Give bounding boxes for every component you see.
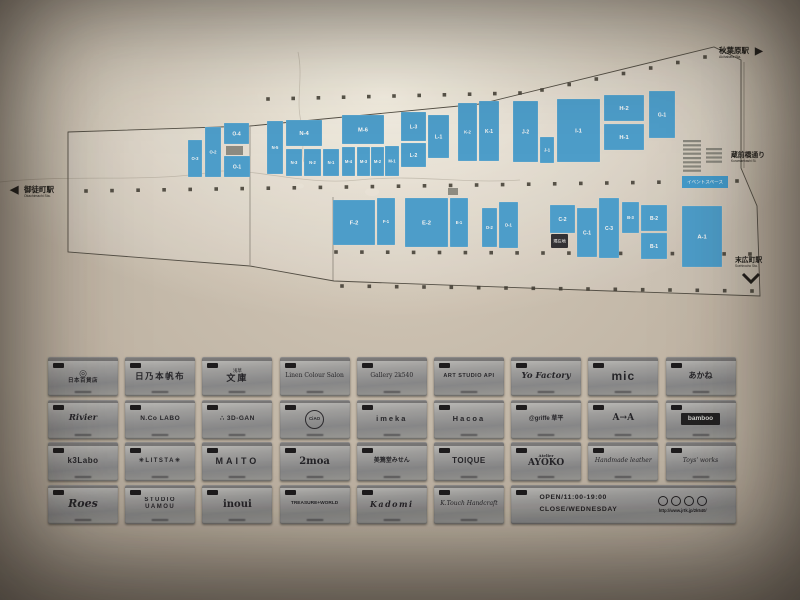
sns-icon <box>697 496 707 506</box>
tenant-caption <box>383 519 400 521</box>
map-unit-N-5: N-5 <box>267 121 283 174</box>
tenant-caption <box>538 476 555 478</box>
tenant-plate: Linen Colour Salon <box>280 357 350 396</box>
tenant-caption <box>75 391 92 393</box>
tenant-plate: mic <box>588 357 658 396</box>
pillar-dot <box>449 184 453 188</box>
map-unit-B-2: B-2 <box>641 205 667 231</box>
tenant-logo-text: STUDIO UAMOU <box>129 497 191 510</box>
pillar-dot <box>668 288 672 292</box>
unit-label: N-1 <box>328 160 335 165</box>
unit-number-badge <box>362 405 373 410</box>
pillar-dot <box>631 181 635 185</box>
tenant-plate: Yo Factory <box>511 357 581 396</box>
tenant-plate: ✳LITSTA✳ <box>125 442 195 481</box>
tenant-caption <box>229 434 246 436</box>
unit-number-badge <box>285 448 296 453</box>
tenant-plate: あかね <box>666 357 736 396</box>
tenant-plate: inoui <box>202 485 272 524</box>
map-unit-H-1: H-1 <box>604 124 644 150</box>
map-unit-O-3: O-3 <box>188 140 202 177</box>
unit-number-badge <box>516 448 527 453</box>
unit-label: B-2 <box>650 216 658 222</box>
info-plate: OPEN/11:00-19:00 CLOSE/WEDNESDAY http://… <box>511 485 735 524</box>
map-unit-K-1: K-1 <box>479 101 499 161</box>
tenant-logo-text: 2moa <box>299 456 330 467</box>
pillar-dot <box>162 188 166 192</box>
pillar-dot <box>450 286 454 290</box>
unit-label: A-1 <box>697 235 707 241</box>
unit-label: H-2 <box>619 106 628 112</box>
tenant-logo-text: TOIQUE <box>452 457 486 466</box>
station-label-akihabara: 秋葉原駅▶Akihabara Sta. <box>718 45 764 59</box>
svg-text:現在地: 現在地 <box>553 238 566 245</box>
unit-label: K-2 <box>464 129 471 134</box>
tenant-plate: imeka <box>357 400 427 439</box>
unit-label: M-6 <box>358 128 369 134</box>
svg-text:◀: ◀ <box>9 184 19 196</box>
unit-label: B-1 <box>650 244 658 250</box>
map-unit-L-3: L-3 <box>401 112 426 141</box>
map-unit-L-1: L-1 <box>428 115 449 158</box>
tenant-caption <box>306 519 323 521</box>
map-unit-E-1: E-1 <box>450 198 468 247</box>
pillar-dot <box>671 252 675 256</box>
pillar-dot <box>392 94 396 98</box>
unit-label: B-3 <box>627 215 634 220</box>
sns-icon <box>658 496 668 506</box>
tenant-caption <box>75 476 92 478</box>
unit-number-badge <box>593 363 604 368</box>
unit-label: M-1 <box>388 158 396 163</box>
tenant-logo-text: inoui <box>223 499 252 510</box>
close-day: CLOSE/WEDNESDAY <box>540 504 618 516</box>
unit-number-badge <box>130 490 141 495</box>
tenant-logo-text: ∴ 3D-GAN <box>220 415 255 422</box>
unit-number-badge <box>439 405 450 410</box>
pillar-dot <box>367 95 371 99</box>
unit-number-badge <box>362 490 373 495</box>
tenant-logo-text: Yo Factory <box>522 372 571 381</box>
map-unit-O-2: O-2 <box>205 127 221 177</box>
unit-number-badge <box>130 363 141 368</box>
svg-text:Akihabara Sta.: Akihabara Sta. <box>719 55 741 59</box>
tenant-logo-text: Roes <box>68 498 98 510</box>
pillar-dot <box>518 91 522 95</box>
tenant-plate: 浅草文庫 <box>202 357 272 396</box>
tenant-caption <box>692 476 709 478</box>
tenant-caption <box>229 391 246 393</box>
pillar-dot <box>489 251 493 255</box>
unit-number-badge <box>285 363 296 368</box>
tenant-logo-text: Toys' works <box>683 458 719 465</box>
sns-icons <box>658 496 707 506</box>
unit-number-badge <box>362 448 373 453</box>
tenant-caption <box>460 519 477 521</box>
unit-label: C-3 <box>605 226 613 232</box>
tenant-caption <box>152 476 169 478</box>
pillar-dot <box>735 179 739 183</box>
tenant-caption <box>229 476 246 478</box>
tenant-logo-text: ◎日本百貨店 <box>68 369 98 384</box>
unit-number-badge <box>671 363 682 368</box>
tenant-plate: Hacoa <box>434 400 504 439</box>
pillar-dot <box>84 189 88 193</box>
service-block <box>448 188 458 195</box>
tenant-logo-text: 日乃本帆布 <box>135 372 185 381</box>
tenant-plate: Rivier <box>48 400 118 439</box>
pillar-dot <box>586 287 590 291</box>
tenant-logo-text: MAITO <box>215 457 259 467</box>
tenant-plate: TOIQUE <box>434 442 504 481</box>
svg-text:Kuramaebashi St.: Kuramaebashi St. <box>731 159 756 163</box>
unit-number-badge <box>207 405 218 410</box>
pillar-dot <box>438 251 442 255</box>
pillar-dot <box>319 186 323 190</box>
tenant-logo-text: AtelierAYOKO <box>528 454 564 468</box>
unit-label: K-1 <box>485 129 493 135</box>
hours-block: OPEN/11:00-19:00 CLOSE/WEDNESDAY <box>540 492 618 515</box>
unit-number-badge <box>439 363 450 368</box>
pillar-dot <box>605 181 609 185</box>
tenant-logo-main: AYOKO <box>528 459 564 469</box>
pillar-dot <box>334 250 338 254</box>
tenant-plate: bamboo <box>666 400 736 439</box>
svg-text:御徒町駅: 御徒町駅 <box>23 184 54 194</box>
tenant-logo-main: 文庫 <box>226 374 248 384</box>
tenant-logo-text: k3Labo <box>67 457 98 466</box>
unit-number-badge <box>207 490 218 495</box>
pillar-dot <box>748 252 752 256</box>
svg-text:末広町駅: 末広町駅 <box>735 255 762 264</box>
pillar-dot <box>559 287 563 291</box>
pillar-dot <box>417 94 421 98</box>
pillar-dot <box>493 92 497 96</box>
tenant-plate: Handmade leather <box>588 442 658 481</box>
tenant-plate: Kadomi <box>357 485 427 524</box>
tenant-directory: ◎日本百貨店日乃本帆布浅草文庫Linen Colour SalonGallery… <box>48 357 748 524</box>
pillar-dot <box>567 83 571 87</box>
pillar-dot <box>443 93 447 97</box>
tenant-caption <box>75 519 92 521</box>
unit-number-badge <box>516 490 527 495</box>
unit-label: G-1 <box>658 112 667 118</box>
unit-number-badge <box>593 405 604 410</box>
unit-label: N-3 <box>291 160 298 165</box>
pillar-dot <box>622 72 626 76</box>
tenant-logo-text: N.Co LABO <box>140 415 180 422</box>
pillar-dot <box>240 187 244 191</box>
tenant-logo-text: あかね <box>689 372 713 381</box>
tenant-caption <box>152 391 169 393</box>
map-unit-F-1: F-1 <box>377 198 395 245</box>
svg-text:イベントスペース: イベントスペース <box>687 180 724 185</box>
tenant-caption <box>615 476 632 478</box>
tenant-logo-text: bamboo <box>681 413 720 424</box>
map-unit-C-2: C-2 <box>550 205 575 233</box>
map-unit-M-6: M-6 <box>342 115 384 144</box>
map-unit-J-2: J-2 <box>513 101 538 162</box>
tenant-plate: ∴ 3D-GAN <box>202 400 272 439</box>
pillar-dot <box>723 289 727 293</box>
pillar-dot <box>342 95 346 99</box>
pillar-dot <box>468 92 472 96</box>
unit-label: D-1 <box>505 222 512 227</box>
svg-text:▶: ▶ <box>754 46 764 57</box>
pillar-dot <box>579 182 583 186</box>
map-unit-I-1: I-1 <box>557 99 600 162</box>
pillar-dot <box>371 185 375 189</box>
tenant-plate: Toys' works <box>666 442 736 481</box>
tenant-caption <box>152 519 169 521</box>
open-hours: OPEN/11:00-19:00 <box>540 492 618 504</box>
map-unit-M-4: M-4 <box>342 147 355 176</box>
wall-photo: O-3O-2O-4O-1N-5N-4N-3N-2N-1M-6M-4M-3M-2M… <box>0 0 800 600</box>
tenant-caption <box>383 434 400 436</box>
svg-text:Okachimachi Sta.: Okachimachi Sta. <box>24 194 51 198</box>
map-unit-N-3: N-3 <box>286 149 302 176</box>
unit-number-badge <box>439 448 450 453</box>
unit-number-badge <box>516 363 527 368</box>
unit-label: D-2 <box>486 225 493 230</box>
tenant-plate: A→A <box>588 400 658 439</box>
pillar-dot <box>703 55 707 59</box>
pillar-dot <box>541 251 545 255</box>
pillar-dot <box>750 289 754 293</box>
map-unit-E-2: E-2 <box>405 198 448 247</box>
tenant-caption <box>383 391 400 393</box>
tenant-plate: k3Labo <box>48 442 118 481</box>
pillar-dot <box>501 183 505 187</box>
map-unit-J-1: J-1 <box>540 137 554 163</box>
pillar-dot <box>464 251 468 255</box>
tenant-logo-text: 美篶堂みせん <box>374 458 410 465</box>
unit-number-badge <box>671 448 682 453</box>
tenant-logo-text: 浅草文庫 <box>226 369 248 384</box>
tenant-caption <box>692 434 709 436</box>
unit-label: O-1 <box>233 164 242 170</box>
unit-label: I-1 <box>575 129 583 135</box>
svg-text:秋葉原駅: 秋葉原駅 <box>718 45 749 55</box>
pillar-dot <box>696 289 700 293</box>
unit-label: O-3 <box>192 156 200 161</box>
pillar-dot <box>477 286 481 290</box>
unit-label: L-1 <box>435 134 443 140</box>
unit-number-badge <box>53 363 64 368</box>
map-unit-K-2: K-2 <box>458 103 477 161</box>
you-are-here-marker: 現在地 <box>551 234 568 248</box>
unit-number-badge <box>53 448 64 453</box>
tenant-caption <box>692 391 709 393</box>
tenant-plate: 2moa <box>280 442 350 481</box>
unit-label: O-2 <box>210 149 218 154</box>
street-label-kuramaebashi: 蔵前橋通りKuramaebashi St. <box>731 150 765 163</box>
tenant-caption <box>460 434 477 436</box>
tenant-plate: 美篶堂みせん <box>357 442 427 481</box>
unit-label: M-3 <box>360 159 368 164</box>
pillar-dot <box>532 287 536 291</box>
sns-icon <box>684 496 694 506</box>
unit-label: M-2 <box>374 159 382 164</box>
tenant-caption <box>229 519 246 521</box>
unit-label: N-2 <box>309 160 316 165</box>
unit-number-badge <box>439 490 450 495</box>
unit-number-badge <box>516 405 527 410</box>
tenant-caption <box>306 434 323 436</box>
map-unit-O-4: O-4 <box>224 123 249 144</box>
pillar-dot <box>368 285 372 289</box>
svg-text:Suehirocho Sta.: Suehirocho Sta. <box>735 264 758 268</box>
pillar-dot <box>722 252 726 256</box>
tenant-logo-text: A→A <box>613 414 635 424</box>
pillar-dot <box>515 251 519 255</box>
unit-label: C-2 <box>558 217 566 223</box>
map-unit-D-1: D-1 <box>499 202 518 248</box>
map-unit-B-1: B-1 <box>641 233 667 259</box>
tenant-plate: CiAO <box>280 400 350 439</box>
pillar-dot <box>676 61 680 65</box>
pillar-dot <box>136 188 140 192</box>
pillar-dot <box>291 97 295 101</box>
event-space-banner: イベントスペース <box>682 176 728 188</box>
unit-number-badge <box>671 405 682 410</box>
pillar-dot <box>641 288 645 292</box>
pillar-dot <box>267 186 271 190</box>
map-unit-N-4: N-4 <box>286 120 322 146</box>
tenant-caption <box>383 476 400 478</box>
tenant-caption <box>615 434 632 436</box>
pillar-dot <box>266 97 270 101</box>
pillar-dot <box>540 88 544 92</box>
map-unit-C-1: C-1 <box>577 208 597 257</box>
tenant-logo-main: 日本百貨店 <box>68 378 98 384</box>
tenant-caption <box>460 476 477 478</box>
pillar-dot <box>649 66 653 70</box>
unit-number-badge <box>593 448 604 453</box>
unit-number-badge <box>285 405 296 410</box>
tenant-plate: TREASURE+WORLD <box>280 485 350 524</box>
unit-label: N-4 <box>299 131 309 137</box>
unit-label: C-1 <box>583 230 591 236</box>
pillar-dot <box>657 180 661 184</box>
tenant-plate: Gallery 2k540 <box>357 357 427 396</box>
pillar-dot <box>386 250 390 254</box>
map-unit-M-1: M-1 <box>385 146 399 176</box>
tenant-plate: @griffe 草平 <box>511 400 581 439</box>
unit-number-badge <box>53 405 64 410</box>
sns-icon <box>671 496 681 506</box>
unit-label: M-4 <box>345 159 353 164</box>
pillar-dot <box>614 288 618 292</box>
tenant-logo-text: Handmade leather <box>595 458 652 465</box>
pillar-dot <box>188 188 192 192</box>
svg-text:蔵前橋通り: 蔵前橋通り <box>731 150 765 159</box>
pillar-dot <box>360 250 364 254</box>
map-unit-B-3: B-3 <box>622 202 639 233</box>
pillar-dot <box>293 186 297 190</box>
web-block: http://www.jrtk.jp/2k540/ <box>658 496 707 513</box>
unit-number-badge <box>130 448 141 453</box>
tenant-logo-text: K.Touch Handcraft <box>440 501 498 508</box>
pillar-dot <box>340 284 344 288</box>
unit-label: L-3 <box>410 124 418 130</box>
wall-patch <box>257 93 263 97</box>
pillar-dot <box>345 185 349 189</box>
station-label-okachimachi: ◀御徒町駅Okachimachi Sta. <box>9 184 54 198</box>
map-unit-D-2: D-2 <box>482 208 497 247</box>
map-unit-F-2: F-2 <box>333 200 375 245</box>
pillar-dot <box>475 183 479 187</box>
unit-label: E-2 <box>422 221 431 227</box>
tenant-logo-text: Gallery 2k540 <box>370 373 413 380</box>
pillar-dot <box>422 285 426 289</box>
tenant-logo-text: ✳LITSTA✳ <box>139 458 182 465</box>
unit-number-badge <box>53 490 64 495</box>
tenant-plate: 日乃本帆布 <box>125 357 195 396</box>
tenant-logo-text: Kadomi <box>370 500 414 509</box>
tenant-plate: AtelierAYOKO <box>511 442 581 481</box>
pillar-dot <box>317 96 321 100</box>
tenant-plate: ART STUDIO API <box>434 357 504 396</box>
unit-label: L-2 <box>410 153 418 159</box>
tenant-caption <box>306 391 323 393</box>
tenant-caption <box>538 434 555 436</box>
tenant-caption <box>615 391 632 393</box>
unit-label: E-1 <box>456 220 463 225</box>
tenant-logo-text: mic <box>611 370 635 383</box>
pillar-dot <box>423 184 427 188</box>
tenant-logo-mark: ◎ <box>68 369 98 378</box>
unit-label: O-4 <box>232 131 241 137</box>
unit-number-badge <box>207 448 218 453</box>
website-url: http://www.jrtk.jp/2k540/ <box>659 508 707 513</box>
tenant-caption <box>75 434 92 436</box>
unit-number-badge <box>130 405 141 410</box>
pillar-dot <box>553 182 557 186</box>
tenant-logo-text: ART STUDIO API <box>443 373 494 379</box>
tenant-plate: K.Touch Handcraft <box>434 485 504 524</box>
pillar-dot <box>214 187 218 191</box>
map-unit-H-2: H-2 <box>604 95 644 121</box>
tenant-logo-text: Rivier <box>69 414 97 423</box>
unit-label: J-2 <box>522 129 529 135</box>
tenant-plate: Roes <box>48 485 118 524</box>
map-unit-M-2: M-2 <box>371 147 384 176</box>
map-unit-O-1: O-1 <box>224 156 250 177</box>
map-unit-L-2: L-2 <box>401 143 426 167</box>
tenant-logo-text: @griffe 草平 <box>529 416 564 423</box>
map-unit-N-1: N-1 <box>323 149 339 176</box>
tenant-plate: ◎日本百貨店 <box>48 357 118 396</box>
pillar-dot <box>595 77 599 81</box>
unit-label: J-1 <box>544 147 551 152</box>
unit-number-badge <box>362 363 373 368</box>
tenant-caption <box>538 391 555 393</box>
tenant-plate: MAITO <box>202 442 272 481</box>
tenant-plate: STUDIO UAMOU <box>125 485 195 524</box>
tenant-caption <box>306 476 323 478</box>
unit-label: H-1 <box>619 135 629 141</box>
unit-label: F-2 <box>350 221 359 227</box>
unit-number-badge <box>285 490 296 495</box>
pillar-dots <box>266 91 522 101</box>
service-block <box>226 146 243 155</box>
tenant-caption <box>460 391 477 393</box>
map-unit-A-1: A-1 <box>682 206 722 267</box>
pillar-dot <box>395 285 399 289</box>
pillar-dot <box>397 184 401 188</box>
unit-label: F-1 <box>383 219 390 224</box>
